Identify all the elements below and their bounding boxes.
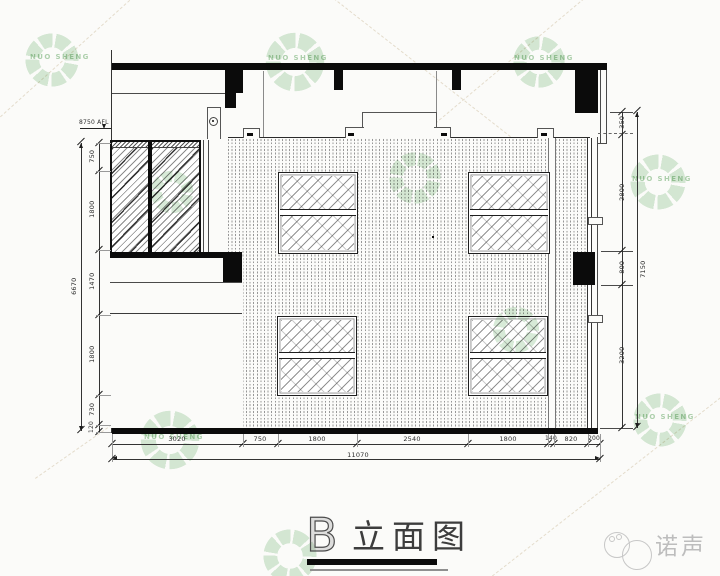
- watermark-ring: [490, 304, 542, 356]
- title-underline-2: [310, 569, 448, 571]
- ceiling-downstand: [225, 70, 243, 93]
- dim-ext-line: [554, 434, 555, 447]
- dim-label-overall: 7150: [640, 254, 647, 284]
- speaker-box-right: [573, 252, 595, 285]
- dim-label-overall: 6670: [71, 271, 78, 301]
- dim-label: 1800: [89, 339, 96, 369]
- window-pane: [472, 216, 546, 250]
- ceiling-downstand: [452, 70, 461, 90]
- dim-ext-line: [548, 434, 549, 447]
- window-pane: [282, 176, 354, 209]
- dim-label: 820: [561, 436, 581, 443]
- dim-label: 1470: [89, 266, 96, 296]
- mounting-clip: [441, 133, 447, 136]
- dim-line-left-overall: [81, 143, 82, 431]
- mirror-side-return: [208, 140, 209, 252]
- title-underline: [307, 559, 437, 565]
- level-mark-line: [80, 128, 111, 129]
- ceiling-downstand: [334, 70, 343, 90]
- dim-ext-line: [600, 428, 633, 429]
- dim-ext-line: [278, 434, 279, 447]
- bracket-screw-icon: [212, 120, 214, 122]
- dim-ext-line: [96, 315, 111, 316]
- brand-logo-text: 诺声: [655, 536, 707, 559]
- title-letter: B: [306, 512, 338, 558]
- window-pane: [281, 320, 353, 352]
- brand-logo-eye-icon: [609, 536, 615, 542]
- watermark-ring: [510, 33, 568, 91]
- dim-label: 750: [245, 436, 275, 443]
- mounting-clip: [348, 133, 354, 136]
- mirror-pane: [112, 148, 148, 254]
- watermark-text: NUO SHENG: [635, 413, 695, 421]
- dim-ext-line: [96, 250, 111, 251]
- watermark-ring: [148, 168, 196, 216]
- window-lower-left: [277, 316, 357, 396]
- speaker-box-left: [223, 253, 242, 283]
- dim-label: 2540: [397, 436, 427, 443]
- window-pane: [472, 176, 546, 209]
- dim-label: 3200: [619, 340, 626, 370]
- watermark-text: NUO SHENG: [30, 53, 90, 61]
- counter-front: [110, 258, 243, 428]
- dim-ext-line: [357, 434, 358, 447]
- dim-label-overall: 11070: [340, 452, 376, 459]
- dim-label: 1800: [302, 436, 332, 443]
- column-edge-line: [598, 143, 607, 144]
- structural-column: [575, 63, 598, 113]
- dim-label: 3020: [162, 436, 192, 443]
- brand-logo-eye-icon: [616, 534, 622, 540]
- dim-ext-line: [601, 285, 633, 286]
- dim-label: 1800: [493, 436, 523, 443]
- window-pane: [472, 359, 544, 392]
- niche-cap: [588, 315, 603, 323]
- watermark-text: NUO SHENG: [514, 54, 574, 62]
- dim-ext-line: [96, 171, 111, 172]
- dim-label: 2800: [619, 177, 626, 207]
- soffit-dashed-line: [598, 133, 633, 134]
- mounting-clip: [541, 133, 547, 136]
- window-rail: [280, 209, 356, 216]
- crown-raised-panel: [362, 112, 437, 139]
- window-pane: [281, 359, 353, 392]
- dim-line-bottom-overall: [112, 459, 600, 460]
- niche-cap: [588, 217, 603, 225]
- watermark-text: NUO SHENG: [632, 175, 692, 183]
- window-pane: [282, 216, 354, 250]
- hanger-rod: [436, 71, 437, 113]
- dim-ext-line: [468, 434, 469, 447]
- dim-ext-line: [96, 425, 111, 426]
- mounting-clip: [247, 133, 253, 136]
- wall-right-face-line: [597, 137, 598, 428]
- dim-ext-line: [96, 395, 111, 396]
- drawing-sheet: NUO SHENG NUO SHENG NUO SHENG NUO SHENG …: [0, 0, 720, 576]
- window-upper-right: [468, 172, 550, 254]
- title-name: 立面图: [352, 520, 472, 553]
- dim-ext-line: [96, 432, 111, 433]
- dim-label: 800: [619, 252, 626, 282]
- watermark-text: NUO SHENG: [268, 54, 328, 62]
- ceiling-downstand: [225, 93, 236, 108]
- wall-outlet-dot: [432, 236, 434, 238]
- level-mark-arrow: [102, 124, 106, 129]
- dim-label: 1800: [89, 194, 96, 224]
- dim-ext-line: [601, 251, 633, 252]
- mirror-side-return: [203, 140, 204, 252]
- dim-ext-line: [243, 434, 244, 447]
- watermark-ring: [386, 149, 444, 207]
- dim-ext-line: [96, 143, 111, 144]
- window-rail: [470, 209, 548, 216]
- dim-line-left: [99, 143, 100, 432]
- brand-logo-circle: [622, 540, 652, 570]
- window-upper-left: [278, 172, 358, 254]
- hanger-rod: [263, 71, 264, 137]
- dim-ext-line: [588, 434, 589, 447]
- watermark-ring: [262, 29, 328, 95]
- window-rail: [279, 352, 355, 359]
- counter-front-line: [110, 282, 242, 283]
- ceiling-soffit-line: [112, 93, 225, 94]
- counter-front-line: [110, 313, 242, 314]
